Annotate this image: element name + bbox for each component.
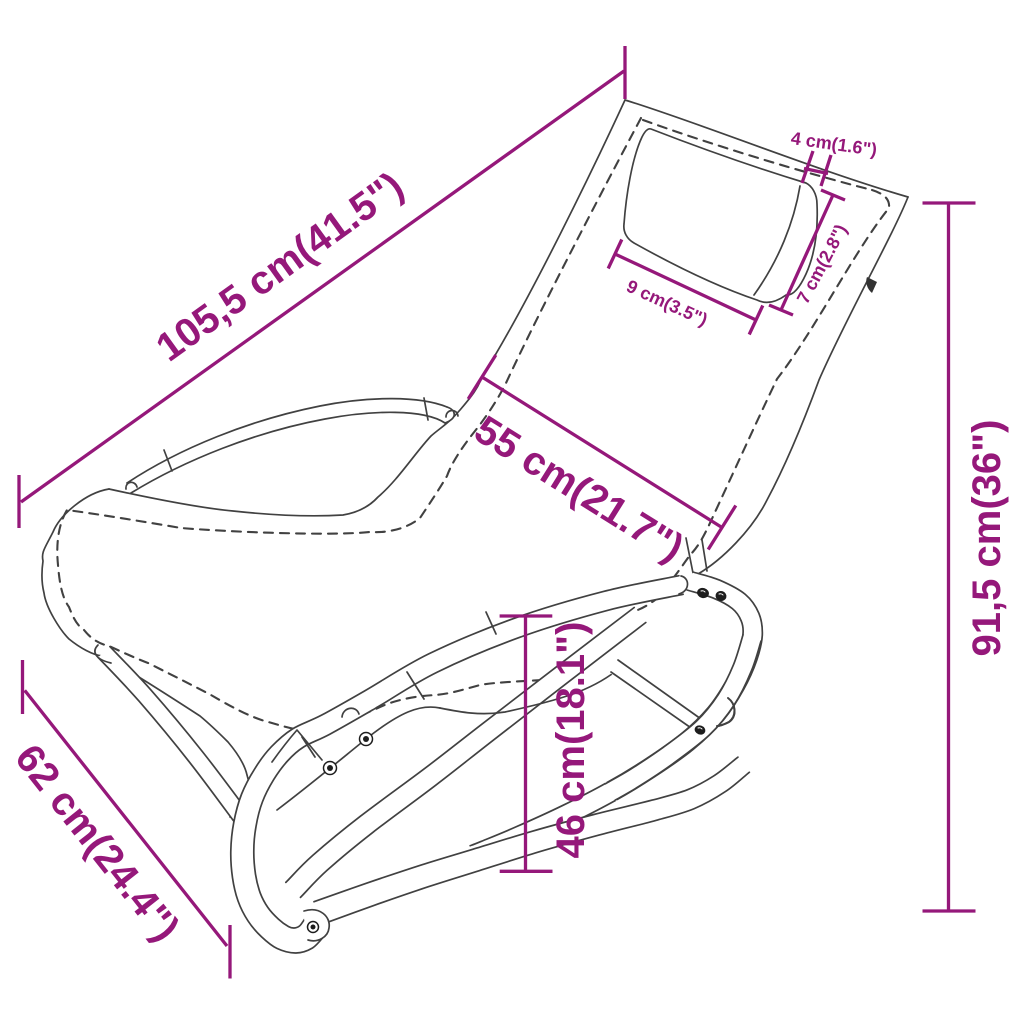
- svg-text:91,5 cm(36"): 91,5 cm(36"): [965, 420, 1009, 657]
- svg-text:62 cm(24.4"): 62 cm(24.4"): [6, 736, 187, 949]
- svg-text:46 cm(18.1"): 46 cm(18.1"): [549, 622, 593, 859]
- svg-text:105,5 cm(41.5"): 105,5 cm(41.5"): [148, 164, 411, 370]
- svg-text:4 cm(1.6"): 4 cm(1.6"): [790, 128, 879, 160]
